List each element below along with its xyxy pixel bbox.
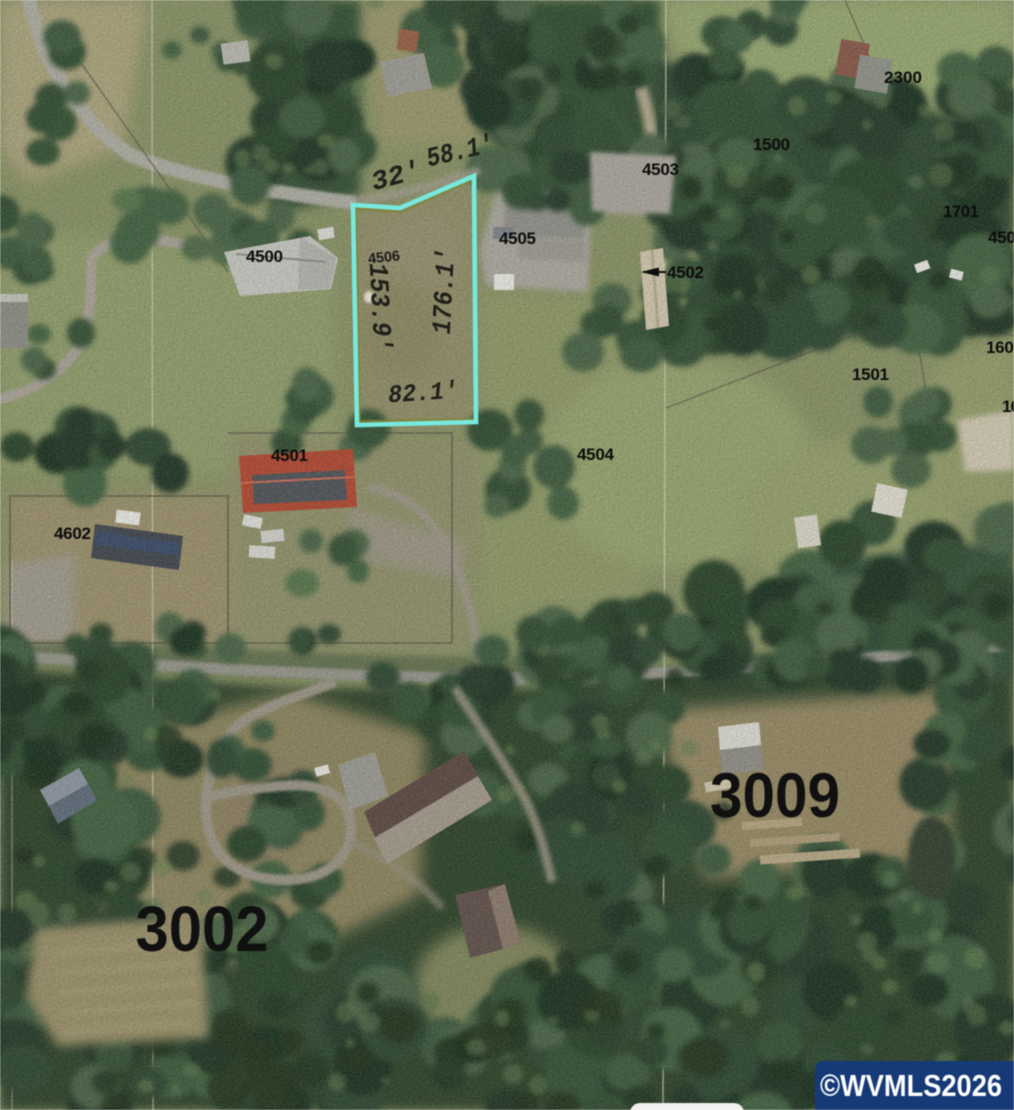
svg-text:4504: 4504	[577, 445, 615, 464]
svg-text:4501: 4501	[271, 446, 308, 465]
svg-text:82.1': 82.1'	[387, 377, 459, 411]
svg-text:1500: 1500	[753, 135, 790, 154]
svg-text:4502: 4502	[667, 263, 704, 282]
svg-text:16: 16	[1002, 397, 1014, 416]
svg-text:2300: 2300	[884, 68, 922, 87]
svg-text:153.9': 153.9'	[361, 262, 396, 351]
svg-text:©WVMLS2026: ©WVMLS2026	[820, 1068, 1002, 1103]
svg-text:1600: 1600	[986, 338, 1014, 357]
svg-text:1701: 1701	[943, 202, 979, 221]
svg-text:3009: 3009	[710, 761, 840, 831]
svg-text:1501: 1501	[852, 365, 889, 384]
svg-text:4503: 4503	[642, 160, 679, 179]
svg-text:4506: 4506	[367, 248, 400, 267]
svg-text:4500: 4500	[988, 228, 1014, 247]
svg-text:4505: 4505	[499, 229, 536, 248]
svg-text:176.1': 176.1'	[429, 247, 463, 334]
svg-text:4602: 4602	[54, 524, 91, 543]
svg-text:3002: 3002	[136, 893, 269, 965]
svg-text:4500: 4500	[246, 247, 283, 266]
